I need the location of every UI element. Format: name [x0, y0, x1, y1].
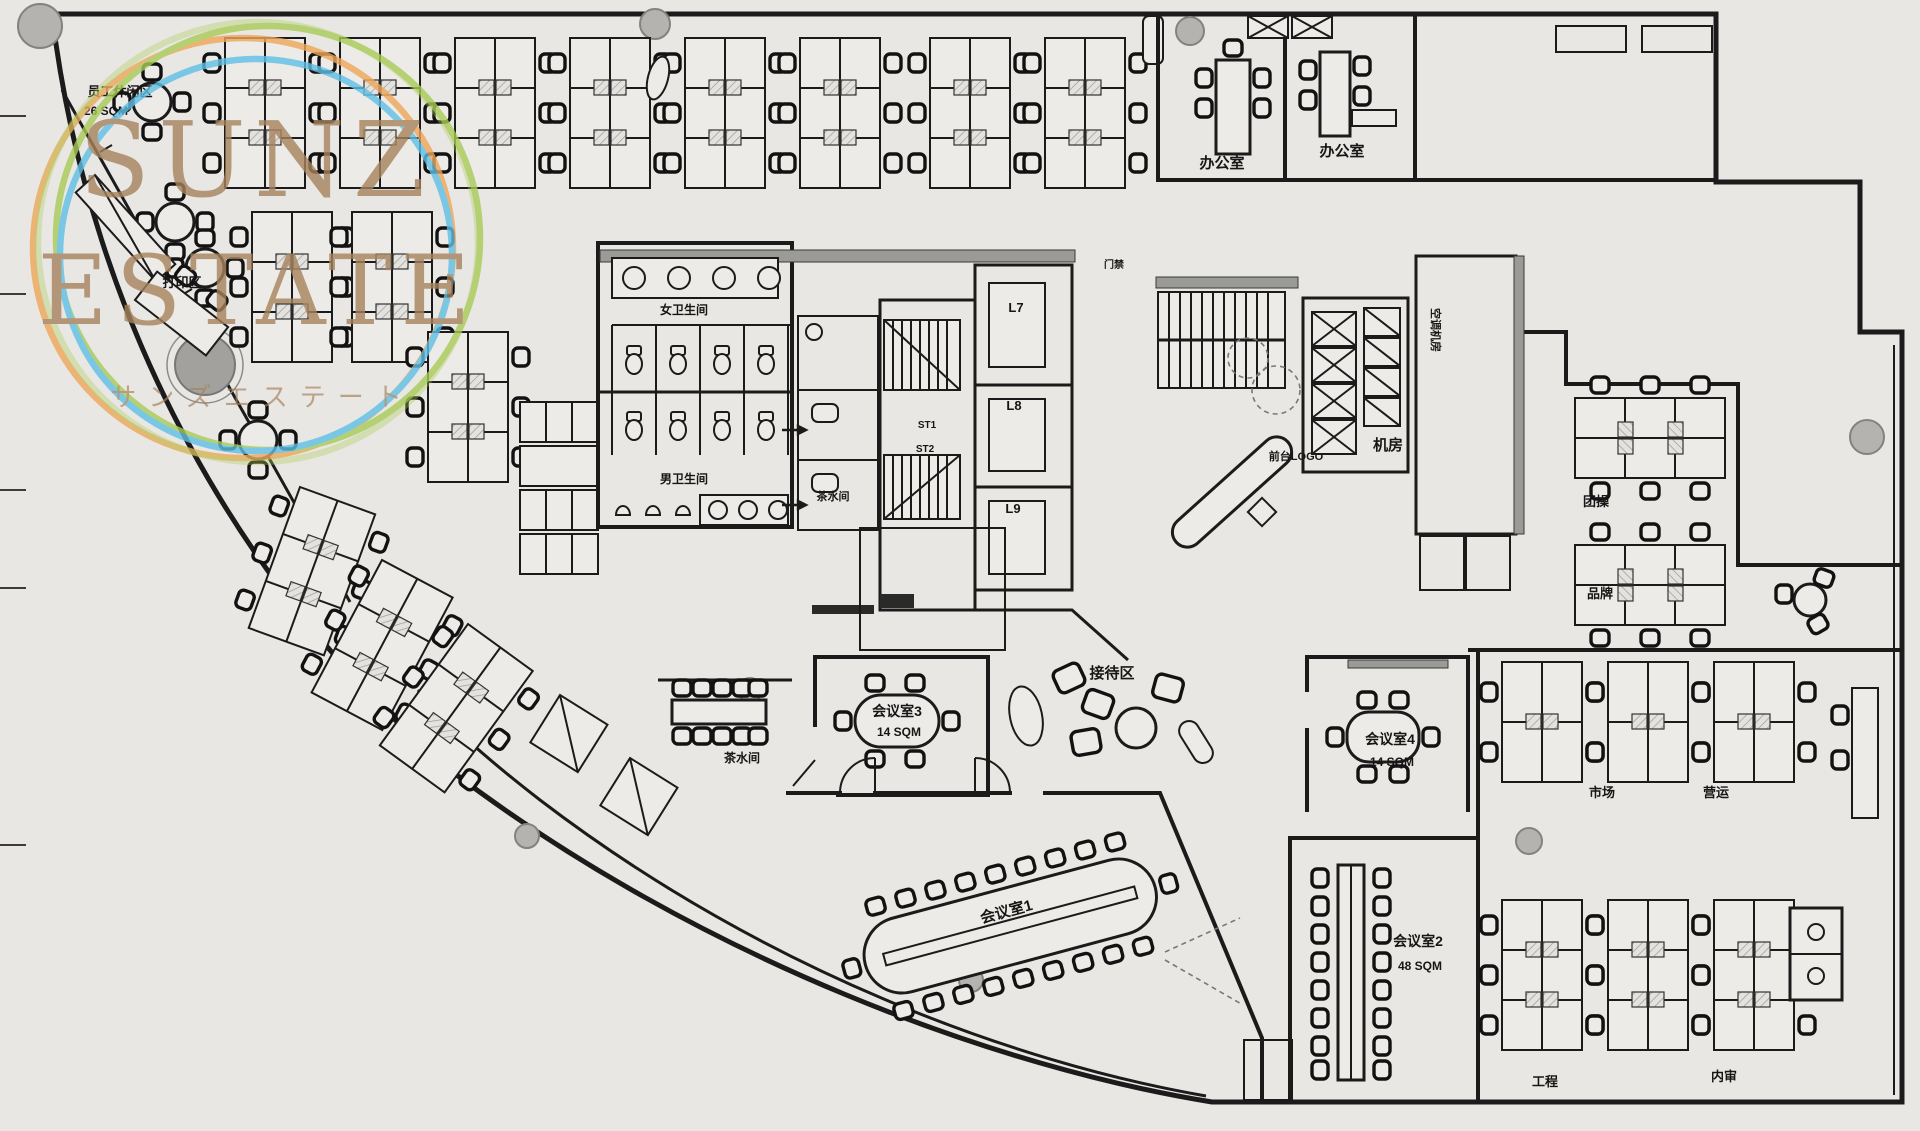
counter-bar: [812, 605, 874, 614]
desk-cluster: [1481, 900, 1603, 1050]
coffee-table: [1116, 708, 1156, 748]
label-meeting-room-4: 会议室4: [1365, 731, 1415, 747]
pantry-table: [672, 700, 766, 724]
shaft-cell: [1420, 536, 1464, 590]
label-marketing: 市场: [1589, 785, 1615, 800]
storage-cabinet-dark: [1790, 908, 1842, 1000]
desk-cluster: [1693, 662, 1815, 782]
women-stalls: [612, 325, 790, 392]
core-service-cells: 茶水间: [782, 316, 878, 530]
av-cabinet: [880, 594, 914, 608]
label-meeting-room-2: 会议室2: [1393, 933, 1443, 949]
round-table: [220, 402, 296, 478]
floor-plan-page: 办公室 办公室 女卫生间 男卫生间: [0, 0, 1920, 1131]
shaft-cell: [1466, 536, 1510, 590]
pouf: [1175, 717, 1216, 767]
hvac-room-area: [1416, 256, 1516, 534]
label-pantry: 茶水间: [723, 750, 760, 765]
pantry-area: 茶水间: [658, 680, 792, 765]
stairwell: ST1 ST2: [880, 300, 975, 610]
label-team-training: 团操: [1583, 494, 1609, 509]
machine-rooms: 机房 空调机房: [1303, 256, 1524, 590]
armchair: [1051, 661, 1087, 695]
label-access-door: 门禁: [1104, 258, 1124, 271]
men-stalls: [612, 392, 788, 525]
grid-ticks: [0, 116, 26, 845]
label-operations: 营运: [1703, 785, 1729, 800]
label-womens-restroom: 女卫生间: [660, 302, 708, 317]
label-machine-room: 机房: [1373, 436, 1403, 454]
private-offices: 办公室 办公室: [1158, 14, 1716, 180]
top-right-window-sills: [1556, 26, 1712, 52]
label-reception: 接待区: [1089, 664, 1134, 682]
server-racks: [1312, 308, 1400, 454]
desk-cluster: [779, 38, 901, 188]
planter: [1004, 683, 1048, 748]
label-office-right: 办公室: [1319, 142, 1364, 160]
label-brand: 品牌: [1587, 586, 1613, 601]
stool: [1248, 498, 1276, 526]
side-round-table: [1776, 567, 1835, 635]
desk-cluster: [1587, 900, 1709, 1050]
desk-cluster: [549, 38, 671, 188]
label-office-left: 办公室: [1199, 154, 1244, 172]
lobby-north-wall: [1156, 277, 1298, 288]
office-left-furniture: [1196, 40, 1270, 154]
open-office-south-east: 市场 营运 工程 内审: [1481, 662, 1878, 1089]
office-right-furniture: [1300, 52, 1396, 136]
desk-cluster: [664, 38, 786, 188]
armchair: [1151, 673, 1184, 703]
label-elevator-l9: L9: [1005, 501, 1020, 516]
storage-pod: [530, 695, 607, 772]
stair-flight-1: [884, 320, 960, 390]
desk-cluster: [434, 38, 556, 188]
desk-cluster: [909, 38, 1031, 188]
meeting-room-3: 会议室3 14 SQM: [793, 657, 988, 795]
label-hvac-room: 空调机房: [1429, 308, 1443, 352]
label-stair-st1: ST1: [918, 420, 937, 431]
label-meeting-room-2-area: 48 SQM: [1398, 959, 1442, 973]
label-meeting-room-3: 会议室3: [872, 703, 922, 719]
armchair: [1070, 728, 1102, 756]
label-pantry-small: 茶水间: [816, 489, 850, 503]
label-engineering: 工程: [1532, 1074, 1558, 1089]
armchair: [1081, 688, 1116, 720]
label-stair-st2: ST2: [916, 444, 935, 455]
stair-flight-2: [884, 455, 960, 519]
lobby: 前台LOGO: [1156, 277, 1324, 553]
watermark-line2: ESTATE: [38, 235, 479, 347]
label-elevator-l7: L7: [1008, 300, 1023, 315]
east-zone: 团操 品牌: [1575, 377, 1835, 646]
meeting-table-3: [835, 675, 959, 767]
label-mens-restroom: 男卫生间: [660, 471, 708, 486]
watermark-subtitle: サンズエステート: [110, 382, 413, 412]
window-counter: [1832, 688, 1878, 818]
label-internal-audit: 内审: [1711, 1069, 1737, 1084]
meeting-room-1: 会议室1: [788, 758, 1262, 1098]
front-desk-counter: [1166, 431, 1298, 554]
desk-cluster: [1024, 38, 1146, 188]
label-meeting-room-3-area: 14 SQM: [877, 725, 921, 739]
desk-cluster: [1575, 377, 1725, 499]
label-meeting-room-4-area: 14 SQM: [1370, 755, 1414, 769]
desk-cluster: [1481, 662, 1603, 782]
desk-cluster: [1575, 524, 1725, 646]
label-elevator-l8: L8: [1006, 398, 1021, 413]
storage-pod: [600, 758, 677, 835]
watermark-line1: SUNZ: [79, 99, 433, 221]
meeting-room-4: 会议室4 14 SQM: [1307, 657, 1468, 810]
pillar-hatch: [1244, 1040, 1292, 1100]
storage-cabinets: [520, 402, 598, 574]
desk-cluster: [1587, 662, 1709, 782]
hvac-east-wall: [1514, 256, 1524, 534]
public-stair: [1158, 292, 1285, 388]
floor-plan-svg: 办公室 办公室 女卫生间 男卫生间: [0, 0, 1920, 1131]
